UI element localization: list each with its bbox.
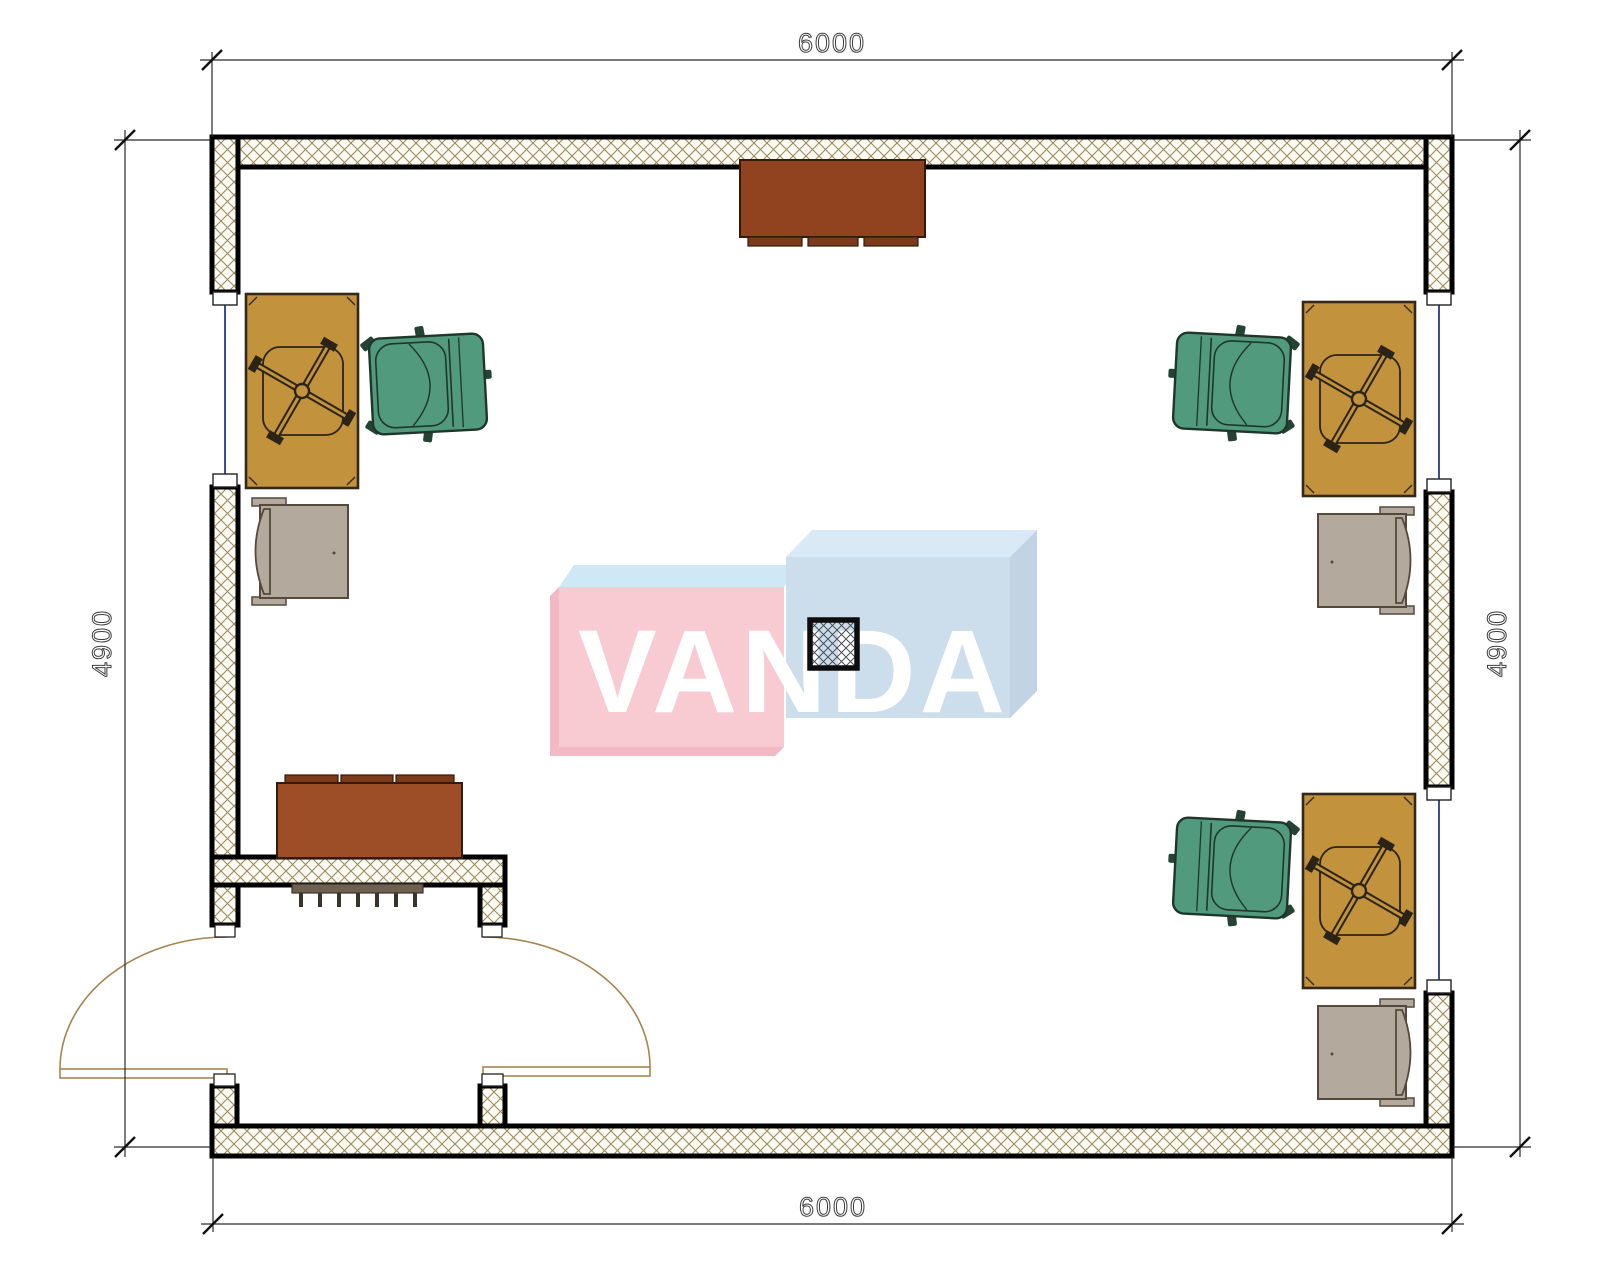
floor-plan-drawing: VANDA xyxy=(0,0,1600,1280)
door-stub-right xyxy=(480,1086,505,1126)
wall-bottom xyxy=(212,1126,1452,1156)
desk-right-bottom xyxy=(1303,794,1415,988)
dimension-top xyxy=(200,50,1464,137)
vanda-watermark: VANDA xyxy=(550,530,1037,756)
dimension-label-right: 4900 xyxy=(1482,609,1512,677)
door-leaf-left xyxy=(60,1069,227,1078)
window-right-upper xyxy=(1427,292,1451,492)
structural-column xyxy=(810,620,857,668)
wall-right-middle xyxy=(1426,492,1452,787)
desk-right-top xyxy=(1303,302,1415,496)
radiator-entry xyxy=(292,884,423,907)
wall-left-upper xyxy=(212,137,238,292)
office-chair-right-bottom xyxy=(1165,806,1301,930)
office-chair-right-top xyxy=(1165,321,1301,445)
entry-jamb-right xyxy=(480,885,505,925)
door-swing-arc-right xyxy=(483,937,650,1067)
door-leaf-right xyxy=(483,1067,650,1076)
side-chair-left xyxy=(252,498,348,605)
door-swing-arc-left xyxy=(60,937,227,1069)
double-entry-door xyxy=(60,925,650,1086)
window-left xyxy=(213,292,237,487)
dimension-label-left: 4900 xyxy=(87,609,117,677)
floor-plan-canvas: VANDA xyxy=(0,0,1600,1280)
dimension-label-bottom: 6000 xyxy=(799,1192,867,1222)
door-stub-left xyxy=(212,1086,237,1126)
office-chair-left xyxy=(359,322,495,446)
desk-left xyxy=(246,294,358,488)
sideboard-entry xyxy=(277,775,462,858)
sideboard-top-wall xyxy=(740,160,925,246)
wall-entry-partition xyxy=(212,857,505,885)
dimension-label-top: 6000 xyxy=(798,28,866,58)
dimension-left xyxy=(114,130,211,1157)
window-right-lower xyxy=(1427,787,1451,993)
wall-right-upper xyxy=(1426,137,1452,292)
watermark-text: VANDA xyxy=(578,606,1009,738)
side-chair-right-bottom xyxy=(1318,999,1414,1106)
side-chair-right-top xyxy=(1318,507,1414,614)
